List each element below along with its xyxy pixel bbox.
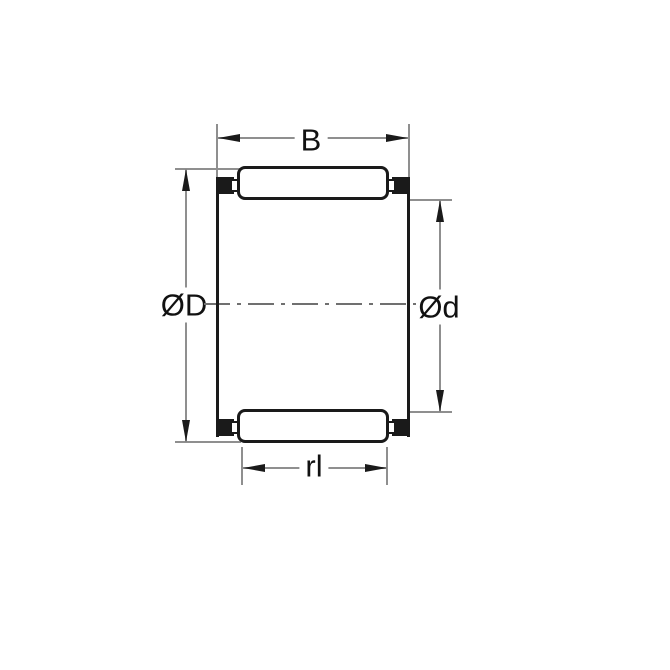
dim-id-label: Ød <box>412 290 465 325</box>
bearing-side-right <box>407 177 410 437</box>
dim-rl-label: rl <box>299 449 328 484</box>
dim-id-arrow-down <box>436 390 444 412</box>
dim-rl-arrow-right <box>365 464 387 472</box>
dim-id-arrow-up <box>436 200 444 222</box>
dim-b-extension-right <box>408 124 410 177</box>
dim-b-arrow-right <box>386 134 408 142</box>
bearing-side-left <box>216 177 219 437</box>
dim-b-arrow-left <box>218 134 240 142</box>
dim-rl-arrow-left <box>243 464 265 472</box>
centerline <box>204 303 416 305</box>
roller-bottom <box>237 409 389 443</box>
dim-b-label: B <box>295 123 328 158</box>
dim-id-extension-bottom <box>409 411 452 413</box>
dim-od-arrow-down <box>182 420 190 442</box>
dim-od-label: ØD <box>155 288 214 323</box>
dim-od-arrow-up <box>182 169 190 191</box>
roller-top <box>237 166 389 200</box>
dim-id-extension-top <box>409 199 452 201</box>
technical-drawing-canvas: B ØD Ød rl <box>0 0 670 670</box>
